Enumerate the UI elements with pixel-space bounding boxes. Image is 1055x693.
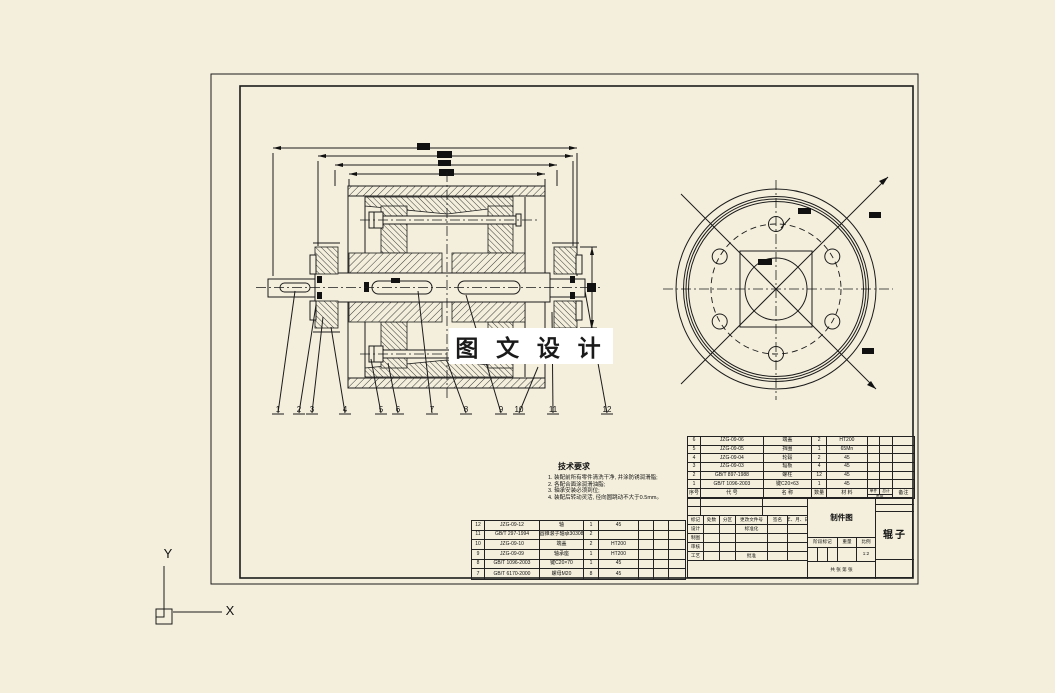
bom-cell: 端盖: [764, 437, 812, 446]
balloon-6: 6: [396, 405, 401, 414]
bom-cell: 45: [599, 560, 639, 570]
bom-cell: [893, 480, 914, 489]
balloon-4: 4: [343, 405, 348, 414]
bom-cell: JZG-09-06: [701, 437, 764, 446]
balloon-numbers: 1 2 3 4 5 6 7 8 9 10 11 12: [272, 405, 613, 414]
revision-mark-label: 标记: [688, 516, 704, 525]
technical-requirements: 技术要求 1. 装配前所有零件清洗干净, 并涂防锈润滑脂; 2. 各配合面涂润滑…: [548, 461, 698, 501]
bom-cell: 1: [812, 446, 827, 455]
bom-cell: 1: [584, 521, 599, 531]
bom-cell: 1: [812, 480, 827, 489]
bom-cell: 轴: [540, 521, 584, 531]
draft-label: 制图: [688, 534, 704, 543]
bom-cell: [639, 569, 654, 579]
check-label: 审核: [688, 543, 704, 552]
bom-cell: [893, 463, 914, 472]
bom-cell: [639, 521, 654, 531]
bom-cell: [893, 446, 914, 455]
bom-cell: 圆锥滚子轴承30308: [540, 531, 584, 541]
bom-cell: 2: [584, 540, 599, 550]
bom-cell: HT200: [599, 540, 639, 550]
bom-cell: JZG-09-04: [701, 454, 764, 463]
design-label: 设计: [688, 525, 704, 534]
bom-cell: 轮毂: [764, 454, 812, 463]
bom-cell: [669, 560, 685, 570]
bom-cell: 12: [472, 521, 485, 531]
bom-table-lower: 12 JZG-09-12 轴 1 45 11 GB/T 297-1994 圆锥滚…: [471, 520, 686, 580]
bom-cell: GB/T 1096-2003: [701, 480, 764, 489]
bom-cell: [880, 472, 893, 481]
bom-cell: [880, 454, 893, 463]
bom-cell: [893, 454, 914, 463]
section-view: 1 2 3 4 5 6 7 8 9 10 11 12: [256, 143, 613, 414]
balloon-12: 12: [603, 405, 612, 414]
bom-cell: GB/T 897-1988: [701, 472, 764, 481]
bom-cell: 2: [812, 454, 827, 463]
bom-cell: 4: [812, 463, 827, 472]
bom-cell: GB/T 6170-2000: [485, 569, 540, 579]
part-name: 辊子: [876, 512, 914, 560]
balloon-8: 8: [464, 405, 469, 414]
bom-cell: 1: [584, 550, 599, 560]
bom-cell: [654, 521, 669, 531]
bom-cell: 45: [827, 472, 867, 481]
bom-cell: 螺柱: [764, 472, 812, 481]
ucs-y-label: Y: [164, 546, 173, 561]
cad-drawing-canvas: 1 2 3 4 5 6 7 8 9 10 11 12: [0, 0, 1055, 693]
bom-cell: 键C20×70: [540, 560, 584, 570]
bom-cell: JZG-09-05: [701, 446, 764, 455]
bom-cell: [880, 446, 893, 455]
bom-cell: [868, 454, 880, 463]
bom-cell: [893, 472, 914, 481]
bom-cell: [868, 463, 880, 472]
bom-cell: JZG-09-09: [485, 550, 540, 560]
stage-mark-label: 阶段标记: [808, 538, 838, 548]
revision-zone-label: 分区: [720, 516, 736, 525]
revision-count-label: 处数: [704, 516, 720, 525]
ucs-icon: Y X: [156, 546, 235, 624]
bom-cell: 65Mn: [827, 446, 867, 455]
bom-cell: [868, 446, 880, 455]
bom-cell: [654, 550, 669, 560]
balloon-3: 3: [310, 405, 315, 414]
balloon-9: 9: [499, 405, 504, 414]
drawing-name: 制件图: [808, 498, 876, 538]
bom-cell: GB/T 1096-2003: [485, 560, 540, 570]
balloon-11: 11: [549, 405, 558, 414]
bom-cell: 端盖: [540, 540, 584, 550]
bom-cell: 9: [472, 550, 485, 560]
bom-cell: GB/T 297-1994: [485, 531, 540, 541]
bom-cell: HT200: [827, 437, 867, 446]
bom-table-upper: 6 JZG-09-06 端盖 2 HT200 5 JZG-09-05 挡圈 1 …: [687, 436, 915, 499]
technical-note-line: 3. 轴承安装必须到位;: [548, 488, 698, 495]
bom-cell: 辐板: [764, 463, 812, 472]
watermark: 图 文 设 计: [449, 328, 613, 364]
bom-cell: [669, 569, 685, 579]
balloon-1: 1: [276, 405, 281, 414]
bom-cell: 45: [827, 463, 867, 472]
bom-cell: [669, 540, 685, 550]
bom-cell: 键C20×63: [764, 480, 812, 489]
technical-note-line: 4. 装配后转动灵活, 径向圆跳动不大于0.5mm。: [548, 495, 698, 502]
standardization-label: 标准化: [736, 525, 768, 534]
revision-docno-label: 更改文件号: [736, 516, 768, 525]
bom-cell: [669, 521, 685, 531]
scale-label: 比例: [857, 538, 876, 548]
bom-cell: 2: [812, 437, 827, 446]
bom-cell: [669, 531, 685, 541]
bom-cell: HT200: [599, 550, 639, 560]
approve-label: 批准: [736, 552, 768, 561]
technical-requirements-title: 技术要求: [558, 461, 698, 472]
bom-cell: 45: [599, 521, 639, 531]
bom-cell: 12: [812, 472, 827, 481]
bom-cell: [639, 531, 654, 541]
bom-cell: [868, 472, 880, 481]
bom-cell: 2: [584, 531, 599, 541]
bom-cell: 2: [688, 472, 701, 481]
bom-cell: [880, 463, 893, 472]
bom-cell: 轴承座: [540, 550, 584, 560]
bom-cell: 45: [599, 569, 639, 579]
bom-cell: [669, 550, 685, 560]
bom-cell: 45: [827, 480, 867, 489]
balloon-2: 2: [297, 405, 302, 414]
bom-cell: JZG-09-03: [701, 463, 764, 472]
bom-cell: 螺母M20: [540, 569, 584, 579]
weight-label: 重量: [838, 538, 857, 548]
bom-cell: [654, 560, 669, 570]
bom-cell: 7: [472, 569, 485, 579]
bom-cell: [654, 569, 669, 579]
bom-cell: [639, 540, 654, 550]
bom-cell: 3: [688, 463, 701, 472]
bom-cell: [893, 437, 914, 446]
title-block: 标记 处数 分区 更改文件号 签名 年、月、日 设计 标准化 制图 审核 工艺 …: [687, 497, 913, 578]
bom-cell: 8: [472, 560, 485, 570]
bom-cell: 5: [688, 446, 701, 455]
bom-cell: 8: [584, 569, 599, 579]
bom-cell: [639, 550, 654, 560]
bom-cell: 挡圈: [764, 446, 812, 455]
balloon-10: 10: [515, 405, 524, 414]
bom-cell: JZG-09-10: [485, 540, 540, 550]
bom-cell: [654, 531, 669, 541]
diagonal-dimension-lines: [681, 177, 888, 389]
bom-cell: [599, 531, 639, 541]
ucs-x-label: X: [226, 603, 235, 618]
revision-sign-label: 签名: [768, 516, 788, 525]
revision-date-label: 年、月、日: [788, 516, 808, 525]
end-view: [663, 177, 893, 400]
bom-cell: 6: [688, 437, 701, 446]
bom-cell: [868, 480, 880, 489]
sheet-count: 共 张 第 张: [808, 562, 876, 579]
watermark-text: 图 文 设 计: [455, 329, 606, 363]
bom-cell: 1: [584, 560, 599, 570]
bom-cell: [880, 480, 893, 489]
balloon-7: 7: [430, 405, 435, 414]
bom-cell: [880, 437, 893, 446]
bom-cell: 10: [472, 540, 485, 550]
balloon-5: 5: [379, 405, 384, 414]
bom-cell: [868, 437, 880, 446]
bom-cell: 11: [472, 531, 485, 541]
bom-cell: 1: [688, 480, 701, 489]
process-label: 工艺: [688, 552, 704, 561]
bom-cell: [654, 540, 669, 550]
bom-cell: JZG-09-12: [485, 521, 540, 531]
scale-value: 1:2: [857, 548, 876, 562]
technical-note-line: 1. 装配前所有零件清洗干净, 并涂防锈润滑脂;: [548, 475, 698, 482]
bom-cell: 45: [827, 454, 867, 463]
bom-cell: 4: [688, 454, 701, 463]
bom-cell: [639, 560, 654, 570]
